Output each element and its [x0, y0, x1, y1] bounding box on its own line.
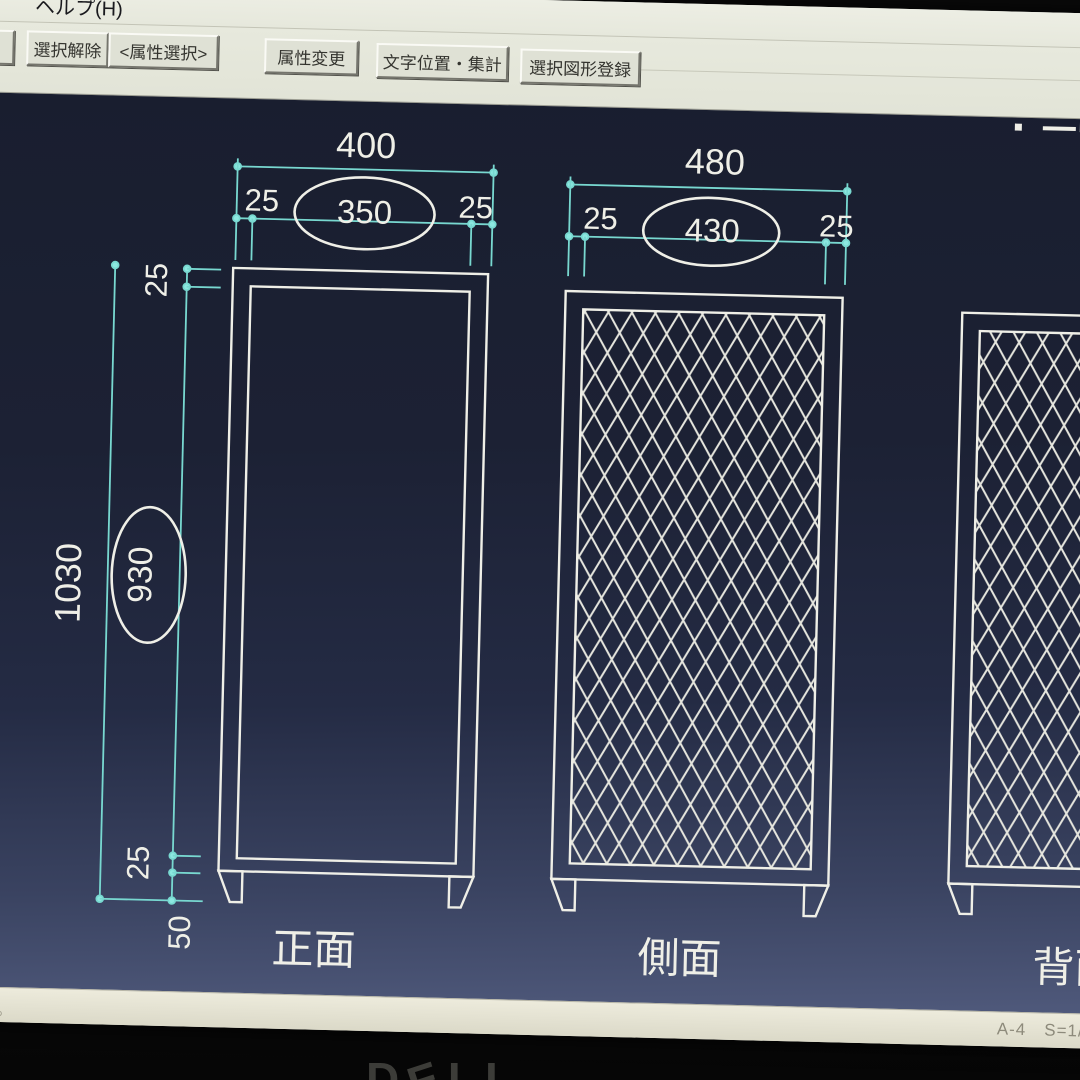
monitor-photo: A)] ヘルプ(H) 択 選択解除 <属性選択> 属性変更 文字位置・集計 選択…: [0, 0, 1080, 1080]
front-view-label: 正面: [271, 925, 356, 974]
partial-dimension-marks: [1015, 120, 1080, 133]
dim-side-middle: 430: [684, 211, 740, 249]
dim-front-right: 25: [458, 190, 493, 226]
front-left-foot: [218, 871, 243, 902]
status-message: ださい。: [0, 994, 13, 1021]
cad-drawing: 400 25 350 25 480 25: [0, 92, 1080, 1014]
toolbar-button-partial[interactable]: 択: [0, 29, 15, 65]
side-inner-rect-mesh: [570, 309, 824, 869]
toolbar-button-deselect[interactable]: 選択解除: [26, 30, 109, 67]
dell-logo-letter: L: [448, 1052, 485, 1080]
back-view-outline: [948, 313, 1080, 918]
dim-height-middle: 930: [121, 546, 160, 603]
side-left-foot: [551, 879, 576, 910]
status-scale[interactable]: S=1/: [1044, 1021, 1080, 1042]
dim-front-left: 25: [244, 182, 279, 218]
dim-height-total: 1030: [46, 543, 89, 624]
menu-help[interactable]: ヘルプ(H): [31, 0, 127, 21]
dim-front-total: 400: [336, 124, 397, 166]
back-inner-rect-mesh: [967, 331, 1080, 870]
toolbar-divider: [628, 69, 1080, 82]
dim-foot-height: 50: [161, 915, 197, 950]
dim-front-middle: 350: [337, 193, 393, 231]
front-view-outline: [218, 268, 488, 908]
toolbar-button-attribute-change[interactable]: 属性変更: [264, 38, 359, 75]
toolbar-button-register-shape[interactable]: 選択図形登録: [520, 48, 641, 86]
dell-logo: D E L L: [366, 1052, 522, 1080]
dim-height-top: 25: [138, 262, 174, 297]
dim-side-left: 25: [583, 201, 618, 237]
front-outer-rect: [218, 268, 488, 877]
front-right-foot: [449, 876, 474, 907]
cad-drawing-canvas[interactable]: 400 25 350 25 480 25: [0, 92, 1080, 1014]
cad-application-window: A)] ヘルプ(H) 択 選択解除 <属性選択> 属性変更 文字位置・集計 選択…: [0, 0, 1080, 1049]
side-view-label: 側面: [637, 934, 722, 983]
dim-height-bottom: 25: [120, 845, 156, 880]
status-sheet-scale: A-4 S=1/: [997, 1019, 1080, 1041]
back-left-foot: [948, 884, 973, 914]
dell-logo-letter: L: [485, 1052, 522, 1080]
front-inner-rect: [237, 286, 470, 863]
toolbar-button-text-position[interactable]: 文字位置・集計: [376, 43, 509, 81]
dim-side-total: 480: [684, 140, 745, 182]
toolbar-button-attribute-select[interactable]: <属性選択>: [108, 32, 219, 70]
back-view-label: 背面: [1032, 943, 1080, 992]
dim-side-right: 25: [819, 208, 854, 244]
status-paper-size[interactable]: A-4: [997, 1019, 1027, 1040]
side-right-foot: [804, 885, 829, 916]
side-view-outline: [551, 291, 843, 917]
